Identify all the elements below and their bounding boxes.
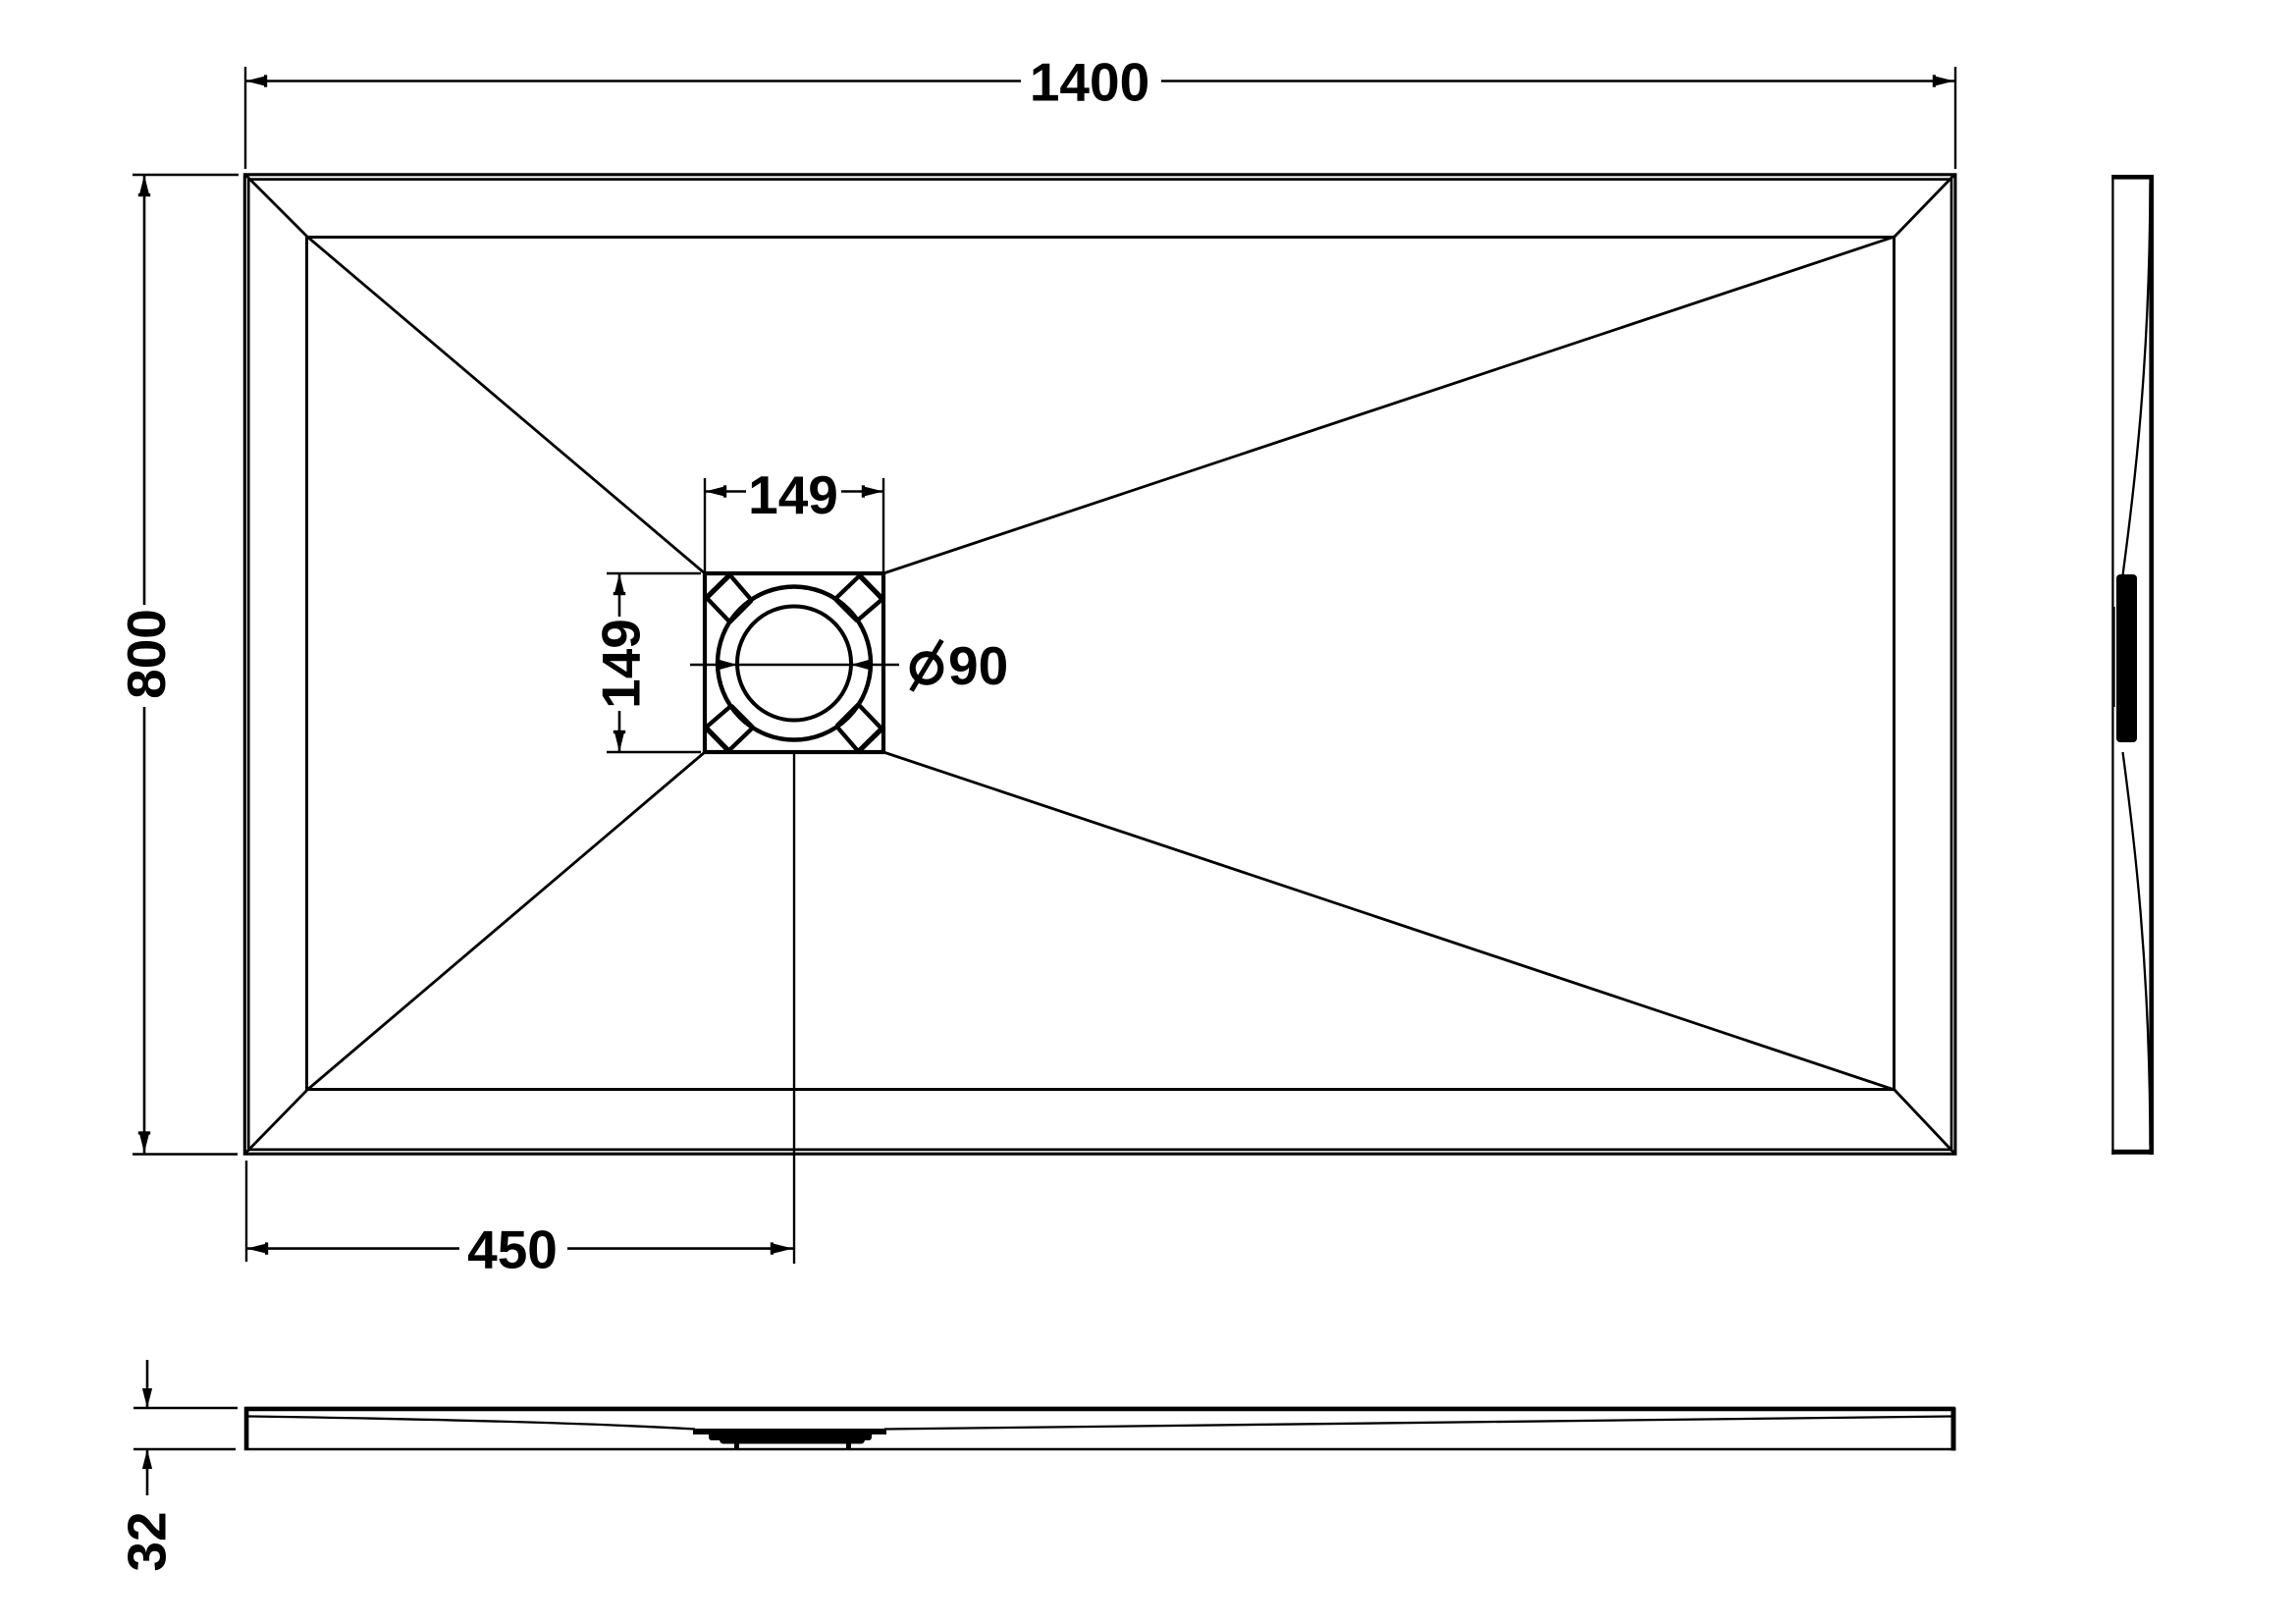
- svg-text:149: 149: [591, 619, 652, 709]
- svg-text:800: 800: [116, 609, 177, 699]
- svg-text:1400: 1400: [1030, 52, 1149, 113]
- svg-text:450: 450: [467, 1219, 558, 1280]
- svg-text:149: 149: [748, 464, 838, 525]
- svg-text:32: 32: [117, 1511, 178, 1571]
- svg-text:90: 90: [948, 635, 1008, 696]
